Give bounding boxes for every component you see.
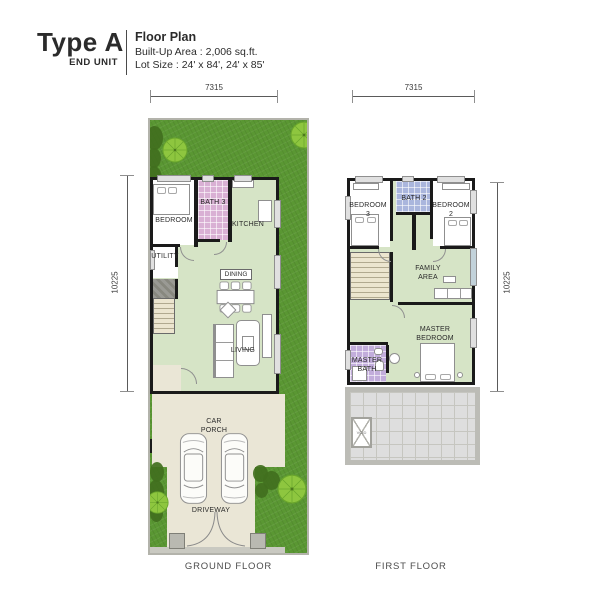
tree-icon bbox=[148, 491, 169, 514]
header-divider bbox=[126, 30, 127, 75]
gf-depth-dimension-line bbox=[127, 175, 128, 392]
ff-master-bath-line2: BATH bbox=[349, 365, 385, 374]
ff-width-dimension-line bbox=[352, 96, 475, 97]
gf-width-dimension: 7315 bbox=[150, 83, 278, 92]
ff-bedroom2-number: 2 bbox=[429, 210, 473, 219]
pillow-icon bbox=[459, 220, 468, 226]
end-unit-label: END UNIT bbox=[37, 57, 118, 68]
ff-width-dimension: 7315 bbox=[352, 83, 475, 92]
plan-title: Floor Plan bbox=[135, 30, 196, 44]
shrub bbox=[150, 462, 164, 482]
gate-icon bbox=[185, 509, 247, 547]
gf-wall-bedroom-bath bbox=[194, 177, 198, 247]
ff-bedroom3-label: BEDROOM 3 bbox=[346, 201, 390, 219]
sink-icon bbox=[374, 348, 383, 355]
ff-bedroom2-name: BEDROOM bbox=[429, 201, 473, 210]
pillow-icon bbox=[425, 374, 436, 380]
ff-depth-tick-bottom bbox=[490, 391, 504, 392]
gf-bath3-label: BATH 3 bbox=[198, 198, 228, 207]
window bbox=[470, 248, 477, 286]
car-icon bbox=[220, 430, 249, 507]
bed-icon bbox=[444, 217, 471, 246]
dining-room-label: DINING bbox=[225, 271, 248, 278]
stair-landing bbox=[153, 279, 175, 298]
ff-master-bedroom-label: MASTER BEDROOM bbox=[411, 325, 459, 343]
pillow-icon bbox=[440, 374, 451, 380]
ff-family-line1: FAMILY bbox=[408, 264, 448, 273]
shrub bbox=[148, 148, 161, 168]
ff-wall-hall bbox=[412, 215, 416, 250]
gate-post bbox=[250, 533, 266, 549]
tree-icon bbox=[277, 474, 307, 504]
gf-kitchen-label: KITCHEN bbox=[228, 220, 268, 229]
gf-wall-stair bbox=[175, 279, 178, 299]
ff-bedroom3-number: 3 bbox=[346, 210, 390, 219]
window bbox=[355, 176, 383, 183]
ff-master-bath-line1: MASTER bbox=[349, 356, 385, 365]
shrub bbox=[148, 126, 163, 150]
gf-width-dimension-line bbox=[150, 96, 278, 97]
gf-wall-left bbox=[150, 177, 153, 394]
ff-bath2-label: BATH 2 bbox=[396, 194, 432, 203]
window bbox=[274, 255, 281, 289]
ff-family-line2: AREA bbox=[408, 273, 448, 282]
gf-lot-garden: DINING bbox=[148, 118, 309, 555]
gate-post bbox=[169, 533, 185, 549]
ff-bedroom3-name: BEDROOM bbox=[346, 201, 390, 210]
gf-depth-tick-bottom bbox=[120, 391, 134, 392]
gf-utility-label: UTILITY bbox=[151, 252, 179, 261]
window bbox=[274, 200, 281, 228]
window bbox=[437, 176, 465, 183]
ff-depth-tick-top bbox=[490, 182, 504, 183]
tree-icon bbox=[162, 137, 188, 163]
window bbox=[470, 318, 477, 348]
gf-foyer-floor bbox=[153, 365, 181, 391]
ff-wall-master-top bbox=[398, 302, 475, 305]
ff-master-bath-label: MASTER BATH bbox=[349, 356, 385, 374]
staircase bbox=[153, 298, 175, 334]
car-icon bbox=[179, 430, 208, 507]
ground-floor-caption: GROUND FLOOR bbox=[148, 561, 309, 572]
built-up-area-text: Built-Up Area : 2,006 sq.ft. bbox=[135, 46, 258, 58]
ff-void: VOID bbox=[351, 417, 372, 448]
gf-living-label: LIVING bbox=[226, 346, 260, 355]
dining-room-label-box: DINING bbox=[220, 269, 252, 280]
ff-wall-bedroom3 bbox=[390, 181, 393, 241]
window bbox=[402, 176, 414, 182]
gf-bath3-floor bbox=[198, 180, 228, 240]
window bbox=[157, 175, 191, 182]
ff-depth-dimension: 10225 bbox=[503, 263, 512, 303]
side-table-icon bbox=[414, 372, 420, 378]
shrub bbox=[255, 483, 268, 498]
ff-depth-dimension-line bbox=[497, 182, 498, 392]
pillow-icon bbox=[157, 187, 166, 194]
car-porch-label-line1: CAR bbox=[194, 417, 234, 426]
pillow-icon bbox=[168, 187, 177, 194]
kitchen-sink-unit bbox=[258, 200, 272, 222]
ottoman-icon bbox=[389, 353, 400, 364]
ff-void-label: VOID bbox=[357, 430, 367, 435]
tree-icon bbox=[290, 121, 309, 149]
gf-bedroom-label: BEDROOM bbox=[152, 216, 196, 225]
ff-master-line2: BEDROOM bbox=[411, 334, 459, 343]
ff-bedroom2-label: BEDROOM 2 bbox=[429, 201, 473, 219]
gf-depth-tick-top bbox=[120, 175, 134, 176]
ff-wall-bottom bbox=[347, 382, 475, 385]
bed-icon bbox=[153, 184, 190, 215]
ff-master-line1: MASTER bbox=[411, 325, 459, 334]
first-floor-caption: FIRST FLOOR bbox=[347, 561, 475, 572]
ff-wall-master-bath-top bbox=[347, 342, 388, 345]
unit-type-title: Type A bbox=[37, 27, 124, 58]
tv-console-icon bbox=[262, 314, 272, 358]
gf-wall-bath-kitchen bbox=[228, 177, 232, 242]
ff-wall-bedroom3-bottom bbox=[349, 246, 379, 249]
floor-plan-sheet: Type A END UNIT Floor Plan Built-Up Area… bbox=[0, 0, 610, 600]
lot-size-text: Lot Size : 24' x 84', 24' x 85' bbox=[135, 59, 264, 71]
sofa-icon bbox=[434, 288, 472, 299]
pillow-icon bbox=[448, 220, 457, 226]
gf-depth-dimension: 10225 bbox=[111, 263, 120, 303]
window bbox=[202, 175, 214, 182]
wardrobe-icon bbox=[442, 183, 470, 190]
bed-icon bbox=[420, 343, 455, 382]
window bbox=[234, 175, 252, 182]
window bbox=[274, 334, 281, 374]
wardrobe-icon bbox=[353, 183, 379, 190]
side-table-icon bbox=[457, 372, 463, 378]
ff-family-area-label: FAMILY AREA bbox=[408, 264, 448, 282]
ff-wall-master-bath-right bbox=[386, 345, 389, 373]
